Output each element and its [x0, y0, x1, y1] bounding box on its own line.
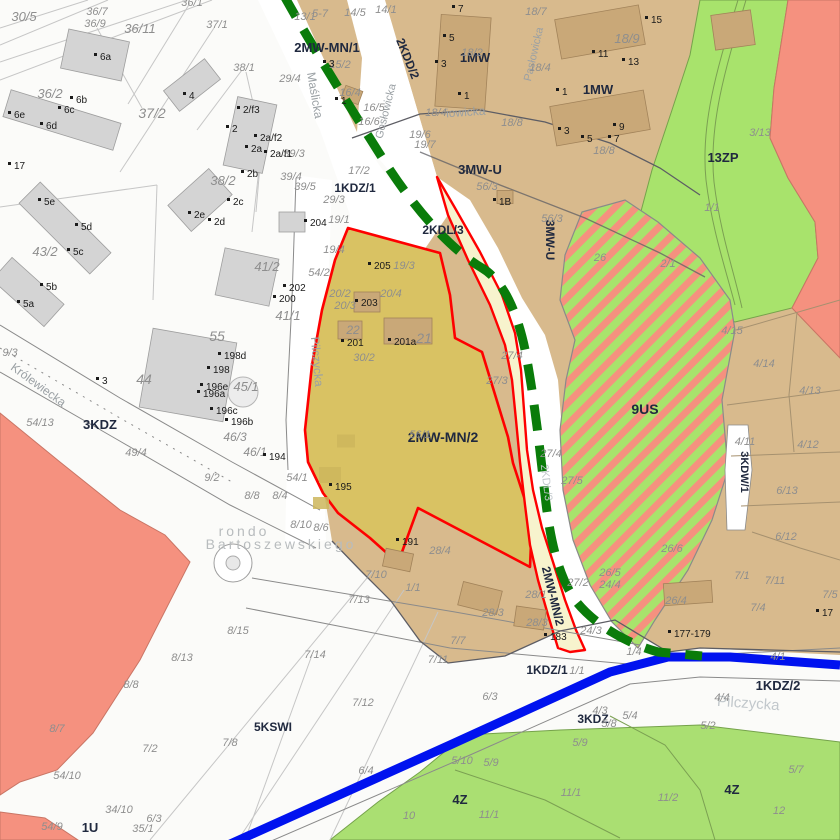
parcel-label: 20/4: [379, 288, 401, 300]
parcel-label: 1/1: [704, 202, 719, 214]
building-dot: [200, 383, 203, 386]
building-label: 6a: [100, 52, 112, 63]
building-label: 203: [361, 298, 378, 309]
zone-label: 3KDZ: [83, 417, 117, 432]
building-label: 17: [14, 161, 26, 172]
parcel-label: 16/6: [358, 116, 380, 128]
building-dot: [8, 111, 11, 114]
zone-label: 4Z: [724, 782, 739, 797]
parcel-label: 4/14: [753, 358, 774, 370]
building-dot: [329, 483, 332, 486]
parcel-label: 27/3: [485, 375, 508, 387]
zoning-map-canvas[interactable]: 2MW-MN/12KDD/21MW1MW3MW-U2KDL/33MW-U1KDZ…: [0, 0, 840, 840]
parcel-label: 9/3: [2, 347, 18, 359]
building-label: 15: [651, 15, 663, 26]
parcel-label: 41/2: [254, 259, 280, 274]
parcel-label: 2/1: [659, 258, 675, 270]
building-label: 177-179: [674, 629, 711, 640]
parcel-label: 8/15: [227, 625, 249, 637]
parcel-label: 37/2: [138, 105, 165, 121]
parcel-label: 34/10: [105, 804, 133, 816]
building-dot: [94, 53, 97, 56]
parcel-label: 14/1: [375, 4, 396, 16]
building-label: 201: [347, 338, 364, 349]
parcel-label: 7/13: [348, 594, 370, 606]
building-dot: [67, 248, 70, 251]
building-label: 1B: [499, 197, 512, 208]
building-label: 5c: [73, 247, 84, 258]
parcel-label: 8/8: [244, 490, 260, 502]
building-dot: [263, 453, 266, 456]
parcel-label: 36/9: [84, 18, 105, 30]
building-label: 191: [402, 537, 419, 548]
parcel-label: 4/15: [721, 325, 743, 337]
building-label: 1: [464, 91, 470, 102]
parcel-label: 5/10: [451, 755, 473, 767]
parcel-label: 27/5: [560, 475, 583, 487]
parcel-label: 8/4: [272, 490, 287, 502]
building-label: 3: [102, 376, 108, 387]
parcel-label: 4/11: [735, 436, 756, 448]
parcel-label: 18/8: [593, 145, 615, 157]
building-label: 183: [550, 632, 567, 643]
parcel-label: 30/2: [353, 352, 374, 364]
parcel-label: 5/2: [700, 720, 715, 732]
zone-label: 2KDL/3: [422, 223, 464, 237]
building-label: 2d: [214, 217, 225, 228]
parcel-label: 54/9: [41, 821, 62, 833]
parcel-label: 5/9: [483, 757, 498, 769]
building-label: 194: [269, 452, 286, 463]
building-label: 204: [310, 218, 327, 229]
parcel-label: 4/12: [797, 439, 818, 451]
parcel-label: 4/13: [799, 385, 821, 397]
building-label: 2e: [194, 210, 206, 221]
parcel-label: 8/6: [313, 522, 329, 534]
parcel-label: 49/4: [125, 447, 146, 459]
parcel-label: 19/1: [328, 214, 349, 226]
parcel-label: 22: [345, 323, 360, 337]
building-label: 5a: [23, 299, 35, 310]
building-dot: [435, 60, 438, 63]
zone-label: 1KDZ/1: [334, 181, 376, 195]
building-dot: [40, 122, 43, 125]
parcel-label: 1/4: [626, 646, 641, 658]
parcel-label: 54/13: [26, 417, 54, 429]
zone-label: 1KDZ/2: [756, 678, 801, 693]
building-label: 201a: [394, 337, 417, 348]
building-dot: [227, 198, 230, 201]
parcel-label: 7/4: [750, 602, 765, 614]
building-label: 5: [587, 134, 593, 145]
parcel-label: 4/3: [592, 705, 608, 717]
parcel-label: 43/2: [32, 244, 58, 259]
rondo-inner-island: [226, 556, 240, 570]
parcel-label: 7/2: [142, 743, 157, 755]
parcel-label: 29/3: [322, 194, 345, 206]
parcel-label: 18/4: [529, 62, 550, 74]
building-dot: [355, 299, 358, 302]
building-label: 6e: [14, 110, 26, 121]
building-label: 2/f3: [243, 105, 260, 116]
parcel-label: 5/9: [572, 737, 587, 749]
zone-label: 3MW-U: [543, 220, 557, 260]
building-label: 5e: [44, 197, 56, 208]
building-label: 195: [335, 482, 352, 493]
parcel-label: 36/7: [86, 6, 108, 18]
building-label: 4: [189, 91, 195, 102]
building-dot: [341, 339, 344, 342]
building-dot: [40, 283, 43, 286]
parcel-label: 16/5: [363, 102, 385, 114]
building-label: 2a: [251, 144, 263, 155]
parcel-label: 19/7: [414, 139, 436, 151]
parcel-label: 1/1: [569, 665, 584, 677]
parcel-label: 7/11: [428, 654, 449, 666]
parcel-label: 36/11: [124, 21, 156, 36]
building-dot: [273, 295, 276, 298]
building-dot: [581, 135, 584, 138]
street-label: Bartoszewskiego: [206, 536, 357, 552]
parcel-label: 28/4: [428, 545, 450, 557]
parcel-label: 27/4: [539, 448, 561, 460]
building-dot: [17, 300, 20, 303]
parcel-label: 18/2: [461, 47, 482, 59]
building-dot: [70, 96, 73, 99]
parcel-label: 45/1: [233, 379, 258, 394]
parcel-label: 19/4: [323, 244, 344, 256]
parcel-label: 28/3: [481, 607, 504, 619]
building-dot: [592, 50, 595, 53]
parcel-label: 8/8: [123, 679, 139, 691]
building-dot: [622, 58, 625, 61]
parcel-label: 11/1: [561, 787, 582, 799]
building-dot: [96, 377, 99, 380]
parcel-label: 27/2: [566, 577, 588, 589]
parcel-label: 28/1: [524, 589, 546, 601]
building-dot: [283, 284, 286, 287]
parcel-label: 18/8: [501, 117, 523, 129]
building-dot: [558, 127, 561, 130]
parcel-label: 7/7: [450, 635, 466, 647]
building-dot: [443, 34, 446, 37]
parcel-label: 8/7: [49, 723, 65, 735]
parcel-label: 56/1: [409, 429, 430, 441]
parcel-label: 17/2: [348, 165, 369, 177]
parcel-label: 19/3: [393, 260, 415, 272]
parcel-label: 1/1: [405, 582, 420, 594]
parcel-label: 7/14: [304, 649, 325, 661]
parcel-label: 26/4: [664, 595, 686, 607]
parcel-label: 38/1: [233, 62, 254, 74]
parcel-label: 4/1: [770, 651, 785, 663]
building-dot: [207, 366, 210, 369]
building-label: 2b: [247, 169, 259, 180]
parcel-label: 44: [136, 371, 152, 387]
building-dot: [210, 407, 213, 410]
building-label: 5: [449, 33, 455, 44]
parcel-label: 8/10: [290, 519, 312, 531]
parcel-label: 7/1: [734, 570, 749, 582]
building-label: 9: [619, 122, 625, 133]
parcel-label: 56/3: [541, 213, 563, 225]
zone-label: 4Z: [452, 792, 467, 807]
building-dot: [264, 150, 267, 153]
parcel-label: 26/6: [660, 543, 683, 555]
building-label: 2c: [233, 197, 244, 208]
building-dot: [254, 134, 257, 137]
building-dot: [608, 135, 611, 138]
building-label: 2a/f2: [260, 133, 283, 144]
parcel-label: 18/7: [525, 6, 547, 18]
parcel-label: 10: [403, 810, 416, 822]
parcel-label: 21: [415, 330, 432, 346]
parcel-label: 6/12: [775, 531, 796, 543]
zone-label: 2MW-MN/1: [294, 40, 359, 55]
parcel-label: 36/2: [37, 86, 63, 101]
parcel-label: 7/8: [222, 737, 238, 749]
parcel-label: 55: [209, 328, 225, 344]
parcel-label: 54/2: [308, 267, 329, 279]
parcel-label: 26: [593, 252, 607, 264]
parcel-label: 7/5: [822, 589, 838, 601]
building-label: 3: [329, 59, 335, 70]
parcel-label: 46/3: [223, 430, 247, 444]
parcel-label: 18/9: [614, 31, 639, 46]
parcel-label: 56/3: [476, 181, 498, 193]
building-dot: [816, 609, 819, 612]
building-dot: [188, 211, 191, 214]
building-dot: [613, 123, 616, 126]
parcel-label: 6/3: [482, 691, 498, 703]
building-dot: [58, 106, 61, 109]
parcel-label: 8/13: [171, 652, 193, 664]
building-label: 196c: [216, 406, 238, 417]
zone-label: 5KSWI: [254, 720, 292, 734]
parcel-label: 28/3: [525, 617, 548, 629]
parcel-label: 38/2: [210, 173, 236, 188]
building-label: 1: [341, 96, 347, 107]
parcel-label: 4/4: [714, 692, 729, 704]
parcel-label: 36/1: [181, 0, 202, 9]
parcel-label: 3/13: [749, 127, 771, 139]
parcel-label: 20/3: [333, 300, 356, 312]
building-label: 196a: [203, 389, 226, 400]
building-label: 1: [562, 87, 568, 98]
building-dot: [208, 218, 211, 221]
parcel-label: 54/1: [286, 472, 307, 484]
building-dot: [323, 60, 326, 63]
building-dot: [8, 162, 11, 165]
building-dot: [38, 198, 41, 201]
building-label: 2a/f1: [270, 149, 293, 160]
building-label: 196b: [231, 417, 254, 428]
zoning-map-viewport[interactable]: 2MW-MN/12KDD/21MW1MW3MW-U2KDL/33MW-U1KDZ…: [0, 0, 840, 840]
parcel-label: 26/5: [598, 567, 621, 579]
parcel-label: 27/4: [500, 350, 522, 362]
zone-label: 1U: [82, 820, 99, 835]
building-label: 3: [564, 126, 570, 137]
building-dot: [556, 88, 559, 91]
parcel-label: 5/7: [788, 764, 804, 776]
parcel-label: 54/10: [53, 770, 81, 782]
building-label: 6c: [64, 105, 75, 116]
parcel-label: 29/4: [278, 73, 300, 85]
building-label: 7: [458, 4, 464, 15]
parcel-label: 5/8: [601, 718, 617, 730]
parcel-label: 7/10: [365, 569, 387, 581]
parcel-label: 9/2: [204, 472, 219, 484]
parcel-label: 37/1: [206, 19, 227, 31]
building-label: 7: [614, 134, 620, 145]
building-label: 13: [628, 57, 640, 68]
building-dot: [226, 125, 229, 128]
building-dot: [225, 418, 228, 421]
zone-label: 3MW-U: [458, 162, 502, 177]
parcel-label: 30/5: [11, 9, 37, 24]
building-dot: [183, 92, 186, 95]
building-label: 200: [279, 294, 296, 305]
building-label: 3: [441, 59, 447, 70]
building-dot: [304, 219, 307, 222]
parcel-label: 20/2: [328, 288, 350, 300]
parcel-label: 14/5: [344, 7, 366, 19]
parcel-label: 39/5: [294, 181, 316, 193]
parcel-label: 18/4: [425, 107, 446, 119]
zone-label: 3KDW/1: [738, 451, 750, 493]
parcel-label: 11/1: [479, 809, 500, 821]
zone-label: 1KDZ/1: [526, 663, 568, 677]
building-label: 17: [822, 608, 834, 619]
building-dot: [388, 338, 391, 341]
parcel-label: 35/1: [132, 823, 153, 835]
street-label: iowicka: [446, 104, 487, 121]
zone-label: 9US: [631, 401, 658, 417]
parcel-label: 6/13: [776, 485, 798, 497]
building-label: 6b: [76, 95, 88, 106]
building-label: 198: [213, 365, 230, 376]
building-dot: [493, 198, 496, 201]
building-dot: [368, 262, 371, 265]
building-dot: [218, 352, 221, 355]
building-label: 198d: [224, 351, 246, 362]
building-dot: [197, 390, 200, 393]
parcel-label: 46/1: [243, 445, 266, 459]
building-dot: [396, 538, 399, 541]
parcel-label: 7/12: [352, 697, 373, 709]
parcel-label: 41/1: [275, 308, 300, 323]
building-dot: [245, 145, 248, 148]
building-label: 2: [232, 124, 238, 135]
building-dot: [544, 633, 547, 636]
parcel-label: 11/2: [658, 792, 679, 804]
parcel-label: 5-7: [312, 8, 329, 20]
building-dot: [241, 170, 244, 173]
parcel-label: 12: [773, 805, 785, 817]
building-dot: [452, 5, 455, 8]
zone-label: 1MW: [583, 82, 614, 97]
building-label: 11: [598, 49, 609, 60]
building-dot: [668, 630, 671, 633]
parcel-label: 24/4: [598, 579, 620, 591]
parcel-label: 6/4: [358, 765, 373, 777]
parcel-label: 24/3: [579, 625, 602, 637]
building-label: 205: [374, 261, 391, 272]
building-dot: [645, 16, 648, 19]
parcel-label: 5/4: [622, 710, 637, 722]
building-label: 202: [289, 283, 306, 294]
building-dot: [335, 97, 338, 100]
parcel-label: 7/11: [765, 575, 786, 587]
zone-label: 13ZP: [707, 150, 738, 165]
building-label: 5d: [81, 222, 92, 233]
building-label: 6d: [46, 121, 57, 132]
building-dot: [237, 106, 240, 109]
building-label: 5b: [46, 282, 58, 293]
building-dot: [75, 223, 78, 226]
building-dot: [458, 92, 461, 95]
